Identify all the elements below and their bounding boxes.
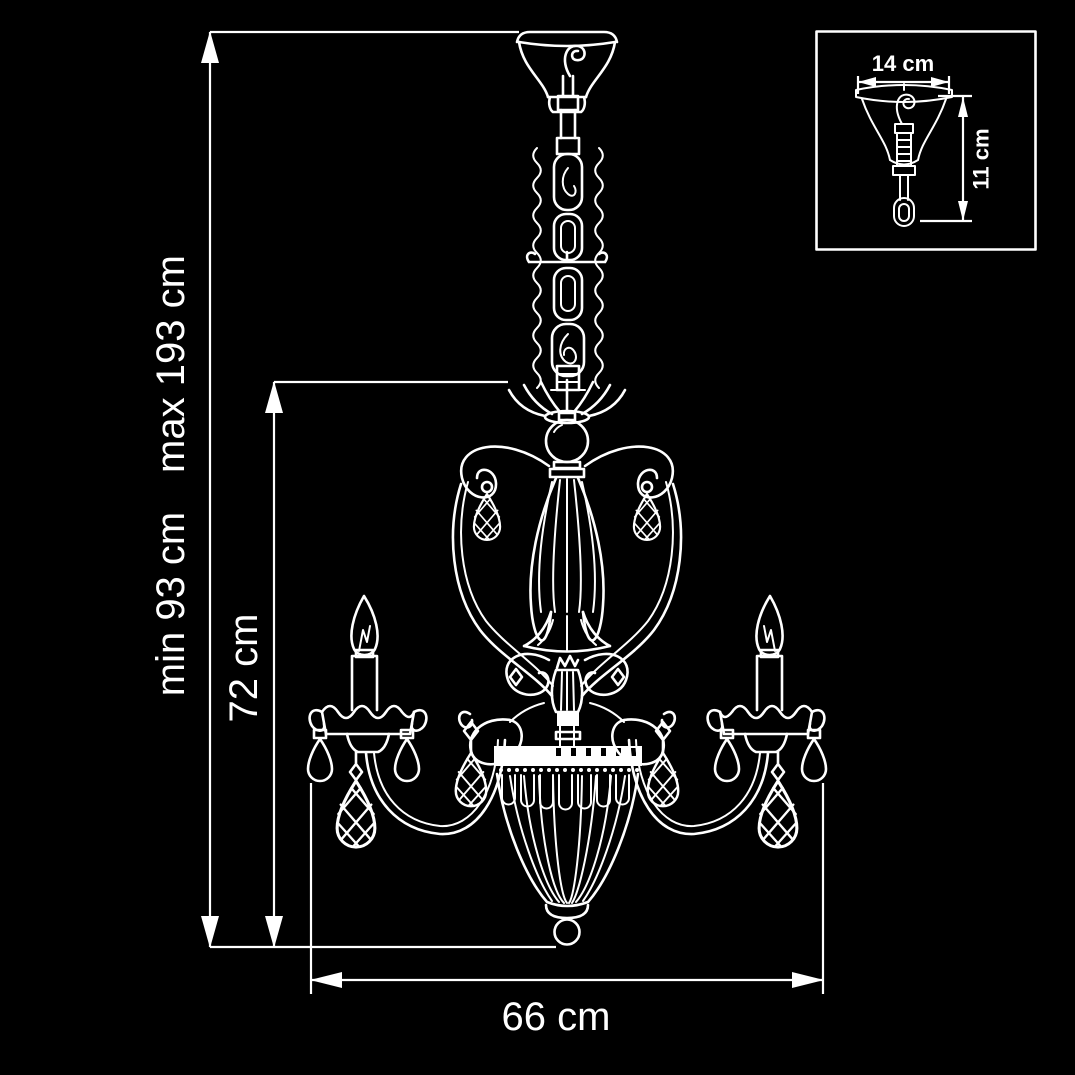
- leaf-crown-drawing: [509, 380, 625, 423]
- label-height-max: max 193 cm: [149, 255, 193, 473]
- inset-hook-icon: [897, 84, 915, 124]
- left-arm-group: [308, 447, 553, 848]
- bead-row: [499, 768, 639, 772]
- hook-icon: [565, 46, 585, 76]
- chain-drawing: [527, 138, 607, 390]
- diagram-page: max 193 cm min 93 cm 72 cm 66 cm: [0, 0, 1075, 1075]
- ball-finial-drawing: [555, 920, 580, 945]
- label-width: 66 cm: [502, 995, 611, 1039]
- chandelier-drawing: [308, 32, 826, 945]
- chandelier-dimension-diagram: max 193 cm min 93 cm 72 cm 66 cm: [0, 0, 1075, 1075]
- label-height-min: min 93 cm: [149, 512, 193, 697]
- basket-ribs: [510, 776, 625, 903]
- label-canopy-width: 14 cm: [872, 51, 934, 76]
- candle-bulb-drawing: [351, 596, 377, 655]
- dimension-width: 66 cm: [310, 783, 824, 1039]
- ceiling-canopy-drawing: [517, 32, 617, 138]
- canopy-inset-panel: 14 cm 11 cm: [817, 32, 1036, 250]
- basket-drawing: [494, 746, 642, 945]
- scroll-cluster-drawing: [552, 656, 582, 746]
- label-canopy-height: 11 cm: [969, 128, 994, 189]
- inset-dimension-height: 11 cm: [920, 96, 994, 221]
- right-arm-group: [581, 447, 826, 848]
- stem-drawing: [524, 413, 610, 652]
- inset-canopy-drawing: [856, 84, 952, 226]
- dimension-body-height: 72 cm: [222, 381, 508, 948]
- label-body-height: 72 cm: [222, 614, 266, 723]
